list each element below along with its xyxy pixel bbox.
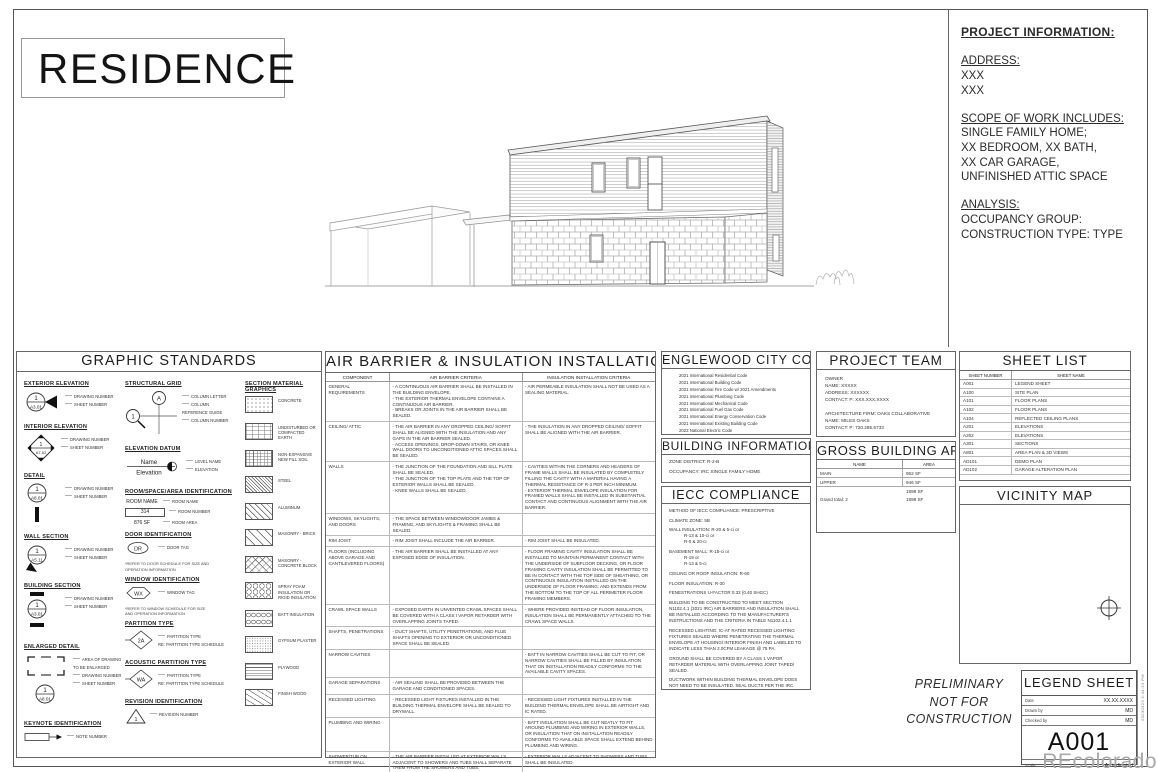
- insulation-criteria-cell: [523, 627, 656, 650]
- code-line: 2021 International Existing Building Cod…: [679, 421, 804, 428]
- air-barrier-criteria-cell: [390, 650, 523, 678]
- project-info-section: ADDRESS:XXXXXX: [961, 54, 1138, 98]
- sheet-number-cell: A101: [960, 397, 1012, 405]
- brick-hatch-swatch: [245, 529, 273, 546]
- material-item: UNDISTURBED OR COMPACTED EARTH: [245, 423, 319, 441]
- code-line: 2021 International Fire Code w/ 2021 Ame…: [679, 387, 804, 394]
- room-id-value: 314: [125, 508, 165, 517]
- material-label: UNDISTURBED OR COMPACTED EARTH: [278, 423, 319, 441]
- residence-title-box: RESIDENCE: [21, 38, 285, 98]
- graphic-standard-heading: STRUCTURAL GRID: [125, 381, 241, 387]
- symbol-label: DRAWING NUMBER: [65, 595, 113, 603]
- svg-text:WX: WX: [134, 591, 143, 597]
- symbol-label: SHEET NUMBER: [65, 554, 113, 562]
- material-item: CONCRETE: [245, 396, 319, 413]
- column-header: AIR BARRIER CRITERIA: [390, 373, 523, 382]
- project-information-panel: PROJECT INFORMATION: ADDRESS:XXXXXXSCOPE…: [948, 9, 1146, 347]
- project-info-heading: ADDRESS:: [961, 54, 1138, 69]
- batt-hatch-swatch: [245, 610, 273, 627]
- field-value: MD: [1125, 708, 1133, 714]
- gross-area-table-body: MAIN952 SFUPPER946 SF: [817, 469, 955, 487]
- compass-crosshair-icon: [1096, 595, 1122, 621]
- sheet-number-cell: A104: [960, 414, 1012, 422]
- graphic-standard-heading: ENLARGED DETAIL: [24, 644, 124, 650]
- insulation-criteria-cell: - EXTERIOR WALLS ADJACENT TO SHOWERS AND…: [523, 752, 656, 772]
- iecc-compliance-title: IECC COMPLIANCE: [662, 487, 810, 504]
- graphic-standard-item: KEYNOTE IDENTIFICATIONNOTE NUMBER: [24, 721, 124, 748]
- room-id-row: 876 SFROOM AREA: [125, 519, 241, 527]
- sheet-name-cell: SITE PLAN: [1012, 389, 1130, 397]
- air-barrier-title: AIR BARRIER & INSULATION INSTALLATION: [326, 352, 655, 373]
- sheet-list-row: A001LEGEND SHEET: [960, 380, 1130, 389]
- symbol-label: REVISION NUMBER: [150, 711, 198, 719]
- gross-area-subtotal-row: 1898 SF: [817, 487, 955, 495]
- air-barrier-criteria-cell: - EXPOSED EARTH IN UNVENTED CRAWL SPACES…: [390, 605, 523, 628]
- area-value-cell: 946 SF: [903, 478, 955, 486]
- insulation-criteria-cell: - RIM JOIST SHALL BE INSULATED.: [523, 536, 656, 547]
- air-barrier-criteria-cell: - THE AIR BARRIER SHALL BE INSTALLED AT …: [390, 547, 523, 605]
- sheet-list-row: A801AREA PLAN & 3D VIEWS: [960, 449, 1130, 458]
- symbol-label: DRAWING NUMBER: [65, 546, 113, 554]
- column-header: SHEET NAME: [1012, 371, 1130, 379]
- team-line: NAME: MILES OAKS: [825, 417, 947, 424]
- symbol-note: *REFER TO WINDOW SCHEDULE FOR SIZE AND O…: [125, 606, 213, 616]
- component-cell: GARAGE SEPARATIONS: [326, 678, 390, 695]
- sheet-number-cell: A102: [960, 406, 1012, 414]
- field-label: Date: [1025, 698, 1034, 703]
- area-value-cell: 952 SF: [903, 469, 955, 477]
- sheet-number-cell: A201: [960, 423, 1012, 431]
- air-barrier-table-header: COMPONENT AIR BARRIER CRITERIA INSULATIO…: [326, 373, 655, 382]
- iecc-paragraph: DUCTWORK WITHIN BUILDING THERMAL ENVELOP…: [669, 677, 803, 689]
- sheet-list-row: A100SITE PLAN: [960, 389, 1130, 398]
- building-information-title: BUILDING INFORMATION: [662, 439, 810, 455]
- graphic-standard-item: ACOUSTIC PARTITION TYPEWAPARTITION TYPE …: [125, 660, 241, 694]
- air-barrier-row: GENERAL REQUIREMENTS- A CONTINUOUS AIR B…: [326, 382, 655, 422]
- component-cell: SHOWER/TUB ON EXTERIOR WALL: [326, 752, 390, 772]
- material-item: MASONRY - BRICK: [245, 529, 319, 546]
- iecc-paragraph: FENESTRATIONS U-FACTOR 0.32 (0.40 SHGC): [669, 590, 803, 596]
- svg-text:A8.01: A8.01: [31, 496, 43, 501]
- symbol-label: DRAWING NUMBER: [65, 485, 113, 493]
- sheet-number-cell: A301: [960, 440, 1012, 448]
- sheet-number-cell: A202: [960, 432, 1012, 440]
- symbol-label: DRAWING NUMBER: [73, 672, 121, 680]
- room-id-value: ROOM NAME: [125, 499, 159, 505]
- graphic-standard-heading: ROOM/SPACE/AREA IDENTIFICATION: [125, 489, 241, 495]
- team-group: OWNERNAME: XXXXXADDRESS: XXXXXXCONTACT: …: [825, 375, 947, 403]
- material-label: PLYWOOD: [278, 663, 319, 670]
- symbol-label: SHEET NUMBER: [61, 444, 109, 452]
- air-barrier-criteria-cell: - RIM JOIST SHALL INCLUDE THE AIR BARRIE…: [390, 536, 523, 547]
- symbol-label: DRAWING NUMBER: [61, 436, 109, 444]
- project-info-section: SCOPE OF WORK INCLUDES:SINGLE FAMILY HOM…: [961, 112, 1138, 186]
- material-label: NON-EXPANSIVE NEW FILL SOIL: [278, 450, 319, 463]
- partition-symbol-icon: WA: [125, 669, 155, 694]
- component-cell: CEILING/ ATTIC: [326, 422, 390, 462]
- enlarged-symbol-icon: 1A8.01: [24, 653, 70, 716]
- sheet-number-cell: AD102: [960, 466, 1012, 474]
- fillsoil-hatch-swatch: [245, 450, 273, 467]
- graphic-standard-item: DETAIL1A8.01DRAWING NUMBERSHEET NUMBER: [24, 473, 124, 529]
- team-line: NAME: XXXXX: [825, 382, 947, 389]
- field-label: Checked by: [1025, 718, 1047, 723]
- air-barrier-criteria-cell: - THE AIR BARRIER INSTALLED AT EXTERIOR …: [390, 752, 523, 772]
- air-barrier-row: CRAWL SPACE WALLS- EXPOSED EARTH IN UNVE…: [326, 605, 655, 628]
- vicinity-map-title: VICINITY MAP: [960, 487, 1130, 505]
- graphic-standard-heading: DOOR IDENTIFICATION: [125, 532, 241, 538]
- material-item: ALUMINUM: [245, 503, 319, 520]
- sheet-number-cell: AD101: [960, 457, 1012, 465]
- code-line: 2021 International Fuel Gas Code: [679, 407, 804, 414]
- sheet-name-cell: SECTIONS: [1012, 440, 1130, 448]
- symbol-label: DOOR TAG: [158, 544, 189, 552]
- iecc-paragraph: BUILDING TO BE CONSTRUCTED TO MEET SECTI…: [669, 600, 803, 624]
- svg-text:Elevation: Elevation: [136, 470, 162, 477]
- material-item: MASONRY - CONCRETE BLOCK: [245, 556, 319, 573]
- section-material-graphics-column: SECTION MATERIAL GRAPHICS CONCRETEUNDIST…: [245, 376, 319, 716]
- subtotal-value: 1898 SF: [903, 487, 955, 495]
- title-block-fields: DateXX.XX.XXXXDrawn byMDChecked byMD: [1022, 696, 1136, 726]
- room-id-value: 876 SF: [125, 520, 159, 526]
- insulation-criteria-cell: - THE INSULATION IN ANY DROPPED CEILING/…: [523, 422, 656, 462]
- graphic-standard-item: REVISION IDENTIFICATION1REVISION NUMBER: [125, 699, 241, 730]
- area-name-cell: MAIN: [817, 469, 903, 477]
- material-swatch-list: CONCRETEUNDISTURBED OR COMPACTED EARTHNO…: [245, 396, 319, 706]
- preliminary-line: PRELIMINARY: [903, 676, 1015, 694]
- building-information-lines: ZONE DISTRICT: R-2-BOCCUPANCY: IRC SINGL…: [662, 455, 810, 482]
- component-cell: GENERAL REQUIREMENTS: [326, 382, 390, 422]
- svg-text:1: 1: [40, 442, 43, 448]
- material-item: NON-EXPANSIVE NEW FILL SOIL: [245, 450, 319, 467]
- graphic-standard-heading: ELEVATION DATUM: [125, 446, 241, 452]
- sheet-list-row: A101FLOOR PLANS: [960, 397, 1130, 406]
- svg-text:1: 1: [43, 688, 47, 694]
- sheet-name-cell: ELEVATIONS: [1012, 423, 1130, 431]
- material-label: SPRAY FOAM INSULATION OR RIGID INSULATIO…: [278, 582, 319, 600]
- iecc-paragraph: METHOD OF IECC COMPLIANCE: PRESCRIPTIVE: [669, 508, 803, 514]
- datum-symbol-icon: NameElevation: [125, 455, 183, 484]
- graphic-standard-item: DOOR IDENTIFICATIONDRDOOR TAG*REFER TO D…: [125, 532, 241, 572]
- title-block-field: Checked byMD: [1022, 716, 1136, 726]
- building-info-line: OCCUPANCY: IRC SINGLE FAMILY HOME: [669, 469, 803, 474]
- air-barrier-panel: AIR BARRIER & INSULATION INSTALLATION CO…: [325, 351, 656, 758]
- svg-text:A3.01: A3.01: [31, 612, 43, 617]
- project-info-line: XXX: [961, 69, 1138, 84]
- sheet-name-cell: DEMO PLAN: [1012, 457, 1130, 465]
- sheet-list-panel: SHEET LIST SHEET NUMBER SHEET NAME A001L…: [959, 351, 1131, 481]
- preliminary-line: NOT FOR: [903, 694, 1015, 712]
- svg-text:A8.01: A8.01: [39, 697, 51, 702]
- air-barrier-row: RIM JOIST- RIM JOIST SHALL INCLUDE THE A…: [326, 536, 655, 547]
- project-information-title: PROJECT INFORMATION:: [961, 25, 1138, 40]
- symbol-note: *REFER TO DOOR SCHEDULE FOR SIZE AND OPE…: [125, 561, 213, 571]
- material-item: GYPSUM PLASTER: [245, 636, 319, 653]
- air-barrier-table-body: GENERAL REQUIREMENTS- A CONTINUOUS AIR B…: [326, 382, 655, 772]
- symbol-label: COLUMN REFERENCE GUIDE: [182, 401, 228, 417]
- scale-label: Scale: [1025, 763, 1035, 768]
- sheet-name-cell: ELEVATIONS: [1012, 432, 1130, 440]
- block-hatch-swatch: [245, 556, 273, 573]
- insulation-criteria-cell: [523, 514, 656, 537]
- svg-text:1: 1: [135, 717, 138, 723]
- air-barrier-criteria-cell: - A CONTINUOUS AIR BARRIER SHALL BE INST…: [390, 382, 523, 422]
- component-cell: RIM JOIST: [326, 536, 390, 547]
- partition-symbol-icon: 2A: [125, 630, 155, 655]
- insulation-criteria-cell: - CAVITIES WITHIN THE CORNERS AND HEADER…: [523, 462, 656, 514]
- symbol-label: PARTITION TYPE RE: PARTITION TYPE SCHEDU…: [158, 633, 224, 649]
- air-barrier-row: GARAGE SEPARATIONS- AIR SEALING SHALL BE…: [326, 678, 655, 695]
- sheet-name-cell: REFLECTED CEILING PLANS: [1012, 414, 1130, 422]
- gross-area-grand-total-row: Grand total: 2 1898 SF: [817, 495, 955, 503]
- column-header: COMPONENT: [326, 373, 390, 382]
- component-cell: FLOORS (INCLUDING ABOVE GARAGE AND CANTI…: [326, 547, 390, 605]
- gypsum-hatch-swatch: [245, 636, 273, 653]
- air-barrier-row: SHOWER/TUB ON EXTERIOR WALL- THE AIR BAR…: [326, 752, 655, 772]
- sheet-list-title: SHEET LIST: [960, 352, 1130, 371]
- svg-text:1: 1: [35, 487, 39, 493]
- sheet-number-cell: A001: [960, 380, 1012, 388]
- revision-symbol-icon: 1: [125, 708, 147, 730]
- field-label: Drawn by: [1025, 708, 1043, 713]
- air-barrier-row: SHAFTS, PENETRATIONS- DUCT SHAFTS, UTILI…: [326, 627, 655, 650]
- material-label: MASONRY - CONCRETE BLOCK: [278, 556, 319, 569]
- project-info-line: CONSTRUCTION TYPE: TYPE: [961, 228, 1138, 243]
- city-code-list: 2021 International Residential Code2021 …: [662, 369, 810, 435]
- symbol-label: LEVEL NAME: [186, 458, 221, 466]
- building-info-line: ZONE DISTRICT: R-2-B: [669, 459, 803, 464]
- project-info-heading: ANALYSIS:: [961, 198, 1138, 213]
- house-elevation-drawing: [322, 106, 942, 306]
- project-team-panel: PROJECT TEAM OWNERNAME: XXXXXADDRESS: XX…: [816, 351, 956, 437]
- gross-area-table-header: NAME AREA: [817, 460, 955, 469]
- detail-symbol-icon: 1A8.01: [24, 482, 62, 529]
- grid-symbol-icon: A1: [125, 390, 179, 441]
- symbol-label: WINDOW TAG: [158, 589, 195, 597]
- graphic-standards-left-column: EXTERIOR ELEVATION1A3.01DRAWING NUMBERSH…: [24, 376, 124, 751]
- graphic-standard-item: STRUCTURAL GRIDA1COLUMN LETTERCOLUMN REF…: [125, 381, 241, 441]
- iecc-paragraph: BASEMENT WALL: R-15-ci or R-19 or R-13 &…: [669, 549, 803, 567]
- material-label: MASONRY - BRICK: [278, 529, 319, 536]
- column-header: AREA: [903, 460, 955, 468]
- project-info-line: OCCUPANCY GROUP:: [961, 213, 1138, 228]
- material-label: STEEL: [278, 476, 319, 483]
- iecc-compliance-panel: IECC COMPLIANCE METHOD OF IECC COMPLIANC…: [661, 486, 811, 690]
- field-value: XX.XX.XXXX: [1104, 698, 1133, 704]
- gross-building-area-panel: GROSS BUILDING AREA NAME AREA MAIN952 SF…: [816, 441, 956, 533]
- gross-building-area-title: GROSS BUILDING AREA: [817, 442, 955, 460]
- room-id-label: ROOM NUMBER: [169, 508, 210, 516]
- graphic-standards-title: GRAPHIC STANDARDS: [17, 352, 321, 372]
- watermark: REcolorado: [1042, 750, 1157, 772]
- project-info-line: XX BEDROOM, XX BATH,: [961, 141, 1138, 156]
- air-barrier-criteria-cell: - DUCT SHAFTS, UTILITY PENETRATIONS, AND…: [390, 627, 523, 650]
- svg-text:A: A: [157, 397, 161, 403]
- finishwood-hatch-swatch: [245, 689, 273, 706]
- svg-text:1: 1: [34, 396, 38, 402]
- room-id-row: 314ROOM NUMBER: [125, 508, 241, 517]
- sheet-list-table-body: A001LEGEND SHEETA100SITE PLANA101FLOOR P…: [960, 380, 1130, 475]
- symbol-label: DRAWING NUMBER: [65, 393, 113, 401]
- symbol-label: PARTITION TYPE RE: PARTITION TYPE SCHEDU…: [158, 672, 224, 688]
- iecc-paragraph: CEILING OR ROOF INSULATION: R-60: [669, 571, 803, 577]
- sheet-list-row: A202ELEVATIONS: [960, 432, 1130, 441]
- column-header: NAME: [817, 460, 903, 468]
- iecc-paragraph: CLIMATE ZONE: 5B: [669, 518, 803, 524]
- graphic-standard-item: WINDOW IDENTIFICATIONWXWINDOW TAG*REFER …: [125, 577, 241, 617]
- symbol-label: SHEET NUMBER: [65, 493, 113, 501]
- air-barrier-row: PLUMBING AND WIRING- BATT INSULATION SHA…: [326, 718, 655, 752]
- component-cell: CRAWL SPACE WALLS: [326, 605, 390, 628]
- code-line: 2023 National Electric Code: [679, 428, 804, 435]
- material-item: STEEL: [245, 476, 319, 493]
- keynote-symbol-icon: [24, 730, 64, 748]
- svg-text:2A: 2A: [138, 639, 145, 645]
- graphic-standard-heading: BUILDING SECTION: [24, 583, 124, 589]
- grand-total-label: Grand total: 2: [817, 495, 903, 503]
- insulation-criteria-cell: - FLOOR FRAMING CAVITY INSULATION SHALL …: [523, 547, 656, 605]
- sheet-list-row: AD101DEMO PLAN: [960, 457, 1130, 466]
- insulation-criteria-cell: [523, 678, 656, 695]
- graphic-standard-heading: DETAIL: [24, 473, 124, 479]
- code-line: 2021 International Mechanical Code: [679, 401, 804, 408]
- air-barrier-criteria-cell: [390, 718, 523, 752]
- air-barrier-criteria-cell: - AIR SEALING SHALL BE PROVIDED BETWEEN …: [390, 678, 523, 695]
- print-stamp: 20230323 2:44:21 PM: [1140, 674, 1145, 721]
- air-barrier-criteria-cell: - THE JUNCTION OF THE FOUNDATION AND SIL…: [390, 462, 523, 514]
- building-information-panel: BUILDING INFORMATION ZONE DISTRICT: R-2-…: [661, 438, 811, 483]
- graphic-standard-heading: WINDOW IDENTIFICATION: [125, 577, 241, 583]
- symbol-label: COLUMN LETTER: [182, 393, 228, 401]
- code-line: 2021 International Plumbing Code: [679, 394, 804, 401]
- sheet-name-cell: GARAGE ALTERATION PLAN: [1012, 466, 1130, 474]
- insulation-criteria-cell: - BATT IN NARROW CAVITIES SHALL BE CUT T…: [523, 650, 656, 678]
- graphic-standard-heading: PARTITION TYPE: [125, 621, 241, 627]
- material-item: BATT INSULATION: [245, 610, 319, 627]
- insulation-criteria-cell: - AIR PERMEABLE INSULATION SHALL NOT BE …: [523, 382, 656, 422]
- air-barrier-row: FLOORS (INCLUDING ABOVE GARAGE AND CANTI…: [326, 547, 655, 605]
- sheet-name-cell: LEGEND SHEET: [1012, 380, 1130, 388]
- symbol-label: SHEET NUMBER: [65, 401, 113, 409]
- wallsec-symbol-icon: 1A5.11: [24, 543, 62, 578]
- iecc-paragraph: FLOOR INSULATION: R-30: [669, 581, 803, 587]
- title-block-field: DateXX.XX.XXXX: [1022, 696, 1136, 706]
- team-line: ADDRESS: XXXXXX: [825, 389, 947, 396]
- air-barrier-row: RECESSED LIGHTING- RECESSED LIGHT FIXTUR…: [326, 695, 655, 718]
- material-item: PLYWOOD: [245, 663, 319, 680]
- graphic-standards-content: EXTERIOR ELEVATION1A3.01DRAWING NUMBERSH…: [17, 372, 321, 758]
- symbol-label: AREA OF DRAWING TO BE ENLARGED: [73, 656, 121, 672]
- graphic-standard-item: WALL SECTION1A5.11DRAWING NUMBERSHEET NU…: [24, 534, 124, 578]
- title-block-field: Drawn byMD: [1022, 706, 1136, 716]
- component-cell: NARROW CAVITIES: [326, 650, 390, 678]
- sheet-list-row: A102FLOOR PLANS: [960, 406, 1130, 415]
- material-item: SPRAY FOAM INSULATION OR RIGID INSULATIO…: [245, 582, 319, 600]
- spacer: [817, 487, 903, 495]
- material-item: FINISH WOOD: [245, 689, 319, 706]
- air-barrier-criteria-cell: - THE AIR BARRIER IN ANY DROPPED CEILING…: [390, 422, 523, 462]
- graphic-standard-heading: KEYNOTE IDENTIFICATION: [24, 721, 124, 727]
- bldgsec-symbol-icon: 1A3.01: [24, 592, 62, 639]
- sprayfoam-hatch-swatch: [245, 582, 273, 599]
- plywood-hatch-swatch: [245, 663, 273, 680]
- intelev-symbol-icon: 1A7.02: [24, 433, 58, 468]
- component-cell: WINDOWS, SKYLIGHTS, AND DOORS: [326, 514, 390, 537]
- project-info-section: ANALYSIS:OCCUPANCY GROUP:CONSTRUCTION TY…: [961, 198, 1138, 242]
- gross-area-row: MAIN952 SF: [817, 469, 955, 478]
- graphic-standard-item: ELEVATION DATUMNameElevationLEVEL NAMEEL…: [125, 446, 241, 484]
- window-symbol-icon: WX: [125, 586, 155, 605]
- graphic-standard-item: ROOM/SPACE/AREA IDENTIFICATIONROOM NAMER…: [125, 489, 241, 527]
- material-label: ALUMINUM: [278, 503, 319, 510]
- project-info-line: UNFINISHED ATTIC SPACE: [961, 170, 1138, 185]
- symbol-label: COLUMN NUMBER: [182, 417, 228, 425]
- iecc-paragraph: RECESSED LIGHTING: IC-AT RATED RECESSED …: [669, 628, 803, 652]
- material-label: GYPSUM PLASTER: [278, 636, 319, 643]
- room-id-label: ROOM NAME: [163, 498, 198, 506]
- component-cell: RECESSED LIGHTING: [326, 695, 390, 718]
- air-barrier-criteria-cell: - THE SPACE BETWEEN WINDOW/DOOR JAMBS & …: [390, 514, 523, 537]
- insulation-criteria-cell: - WHERE PROVIDED INSTEAD OF FLOOR INSULA…: [523, 605, 656, 628]
- component-cell: WALLS: [326, 462, 390, 514]
- graphic-standard-item: PARTITION TYPE2APARTITION TYPE RE: PARTI…: [125, 621, 241, 655]
- project-info-heading: SCOPE OF WORK INCLUDES:: [961, 112, 1138, 127]
- project-team-title: PROJECT TEAM: [817, 352, 955, 370]
- drawing-sheet: RESIDENCE: [0, 0, 1157, 772]
- project-info-line: SINGLE FAMILY HOME;: [961, 126, 1138, 141]
- area-name-cell: UPPER: [817, 478, 903, 486]
- symbol-label: SHEET NUMBER: [65, 603, 113, 611]
- svg-text:1: 1: [35, 549, 39, 555]
- column-header: INSULATION INSTALLATION CRITERIA: [523, 373, 656, 382]
- graphic-standard-heading: INTERIOR ELEVATION: [24, 424, 124, 430]
- page-title: RESIDENCE: [38, 45, 297, 92]
- grand-total-value: 1898 SF: [903, 495, 955, 503]
- svg-text:WA: WA: [137, 678, 146, 684]
- team-line: ARCHITECTURE FIRM: OAKS COLLABORATIVE: [825, 410, 947, 417]
- graphic-standards-panel: GRAPHIC STANDARDS EXTERIOR ELEVATION1A3.…: [16, 351, 322, 758]
- sheet-list-row: A301SECTIONS: [960, 440, 1130, 449]
- air-barrier-row: CEILING/ ATTIC- THE AIR BARRIER IN ANY D…: [326, 422, 655, 462]
- room-id-row: ROOM NAMEROOM NAME: [125, 498, 241, 506]
- sheet-name-cell: FLOOR PLANS: [1012, 397, 1130, 405]
- project-info-line: XX CAR GARAGE,: [961, 156, 1138, 171]
- project-info-line: XXX: [961, 84, 1138, 99]
- graphic-standards-middle-column: STRUCTURAL GRIDA1COLUMN LETTERCOLUMN REF…: [125, 376, 241, 733]
- project-information-sections: ADDRESS:XXXXXXSCOPE OF WORK INCLUDES:SIN…: [961, 54, 1138, 242]
- svg-text:A3.01: A3.01: [30, 405, 42, 410]
- material-label: CONCRETE: [278, 396, 319, 403]
- steel-hatch-swatch: [245, 476, 273, 493]
- graphic-standard-heading: WALL SECTION: [24, 534, 124, 540]
- graphic-standard-heading: EXTERIOR ELEVATION: [24, 381, 124, 387]
- graphic-standard-item: INTERIOR ELEVATION1A7.02DRAWING NUMBERSH…: [24, 424, 124, 468]
- code-line: 2021 International Building Code: [679, 380, 804, 387]
- preliminary-line: CONSTRUCTION: [903, 711, 1015, 729]
- iecc-compliance-list: METHOD OF IECC COMPLIANCE: PRESCRIPTIVEC…: [662, 504, 810, 697]
- iecc-paragraph: GROUND SHALL BE COVERED BY A CLASS 1 VAP…: [669, 656, 803, 674]
- air-barrier-row: WALLS- THE JUNCTION OF THE FOUNDATION AN…: [326, 462, 655, 514]
- team-line: OWNER: [825, 375, 947, 382]
- code-line: 2021 International Energy Conservation C…: [679, 414, 804, 421]
- concrete-hatch-swatch: [245, 396, 273, 413]
- door-symbol-icon: DR: [125, 541, 155, 560]
- air-barrier-row: WINDOWS, SKYLIGHTS, AND DOORS- THE SPACE…: [326, 514, 655, 537]
- svg-text:A7.02: A7.02: [36, 450, 47, 455]
- city-code-title: ENGLEWOOD CITY CODE: [662, 352, 810, 369]
- column-header: SHEET NUMBER: [960, 371, 1012, 379]
- svg-text:1: 1: [35, 603, 39, 609]
